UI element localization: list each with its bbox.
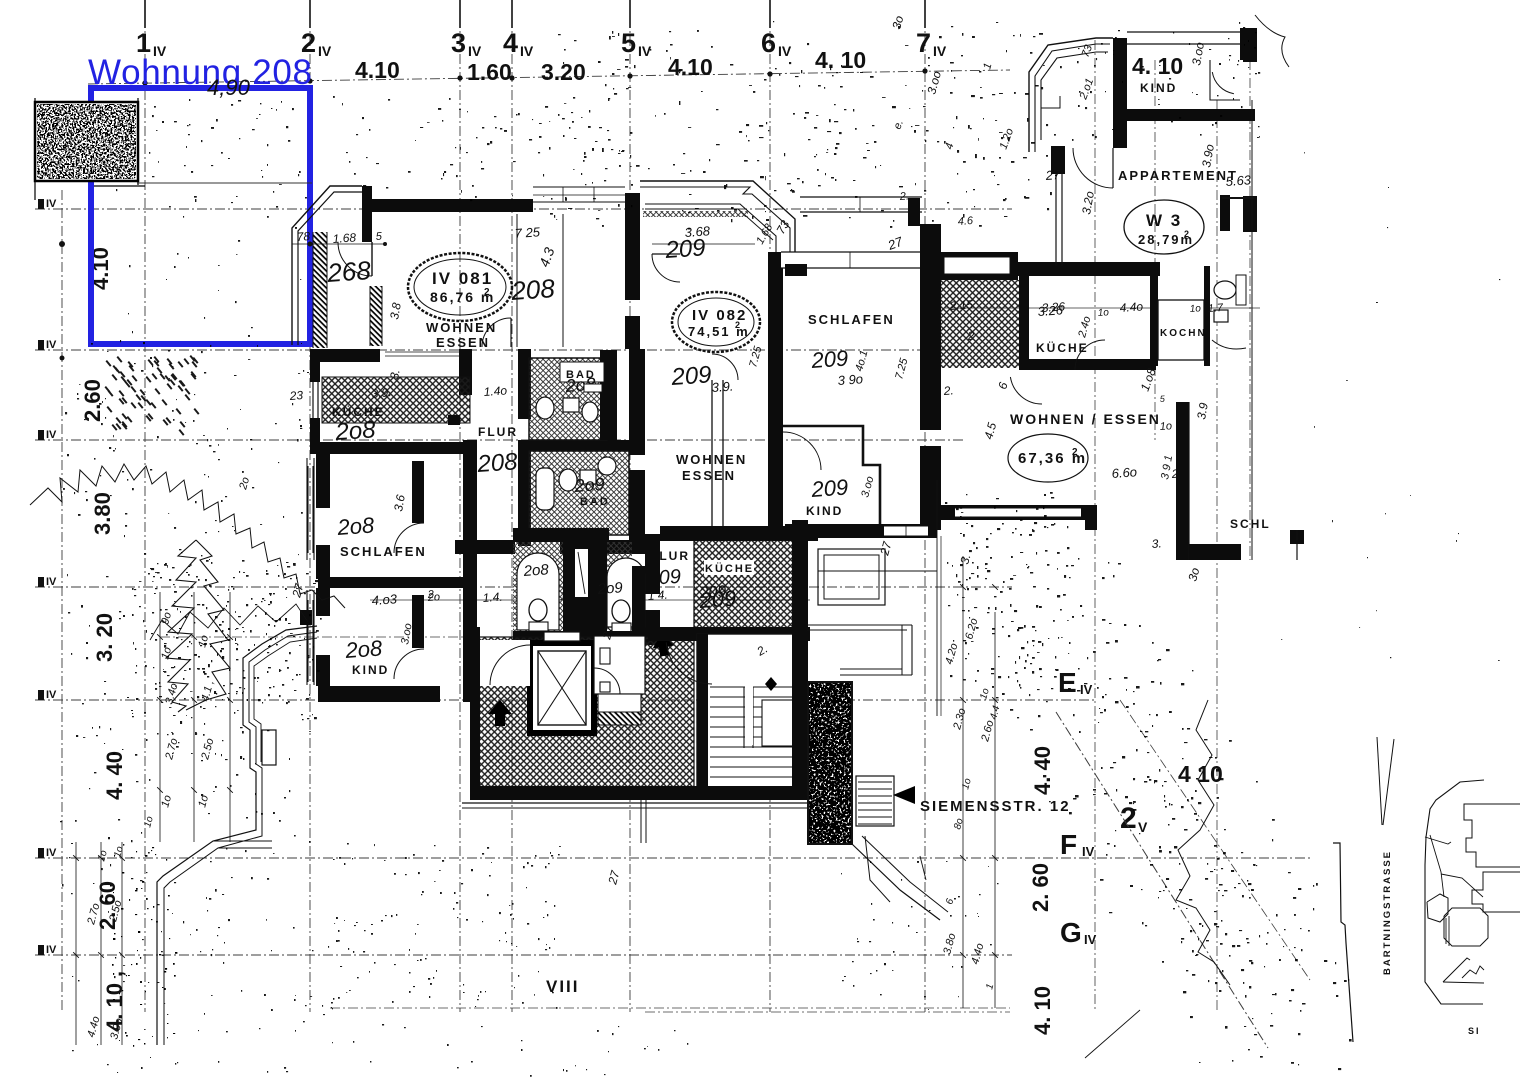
svg-text:IV: IV (46, 339, 57, 351)
svg-text:4.10: 4.10 (355, 57, 400, 83)
svg-text:1o: 1o (1159, 420, 1172, 433)
svg-text:4. 10: 4. 10 (1030, 986, 1055, 1035)
svg-text:BAD: BAD (580, 496, 610, 508)
svg-text:3.8: 3.8 (387, 301, 404, 320)
svg-text:KÜCHE: KÜCHE (705, 562, 754, 575)
svg-text:2: 2 (484, 287, 492, 298)
svg-text:2: 2 (1072, 447, 1080, 458)
svg-text:IV: IV (933, 43, 947, 59)
svg-text:208: 208 (476, 448, 519, 478)
svg-text:KIND: KIND (1140, 81, 1177, 95)
svg-text:1.60: 1.60 (467, 59, 512, 85)
svg-text:4. 40: 4. 40 (1030, 746, 1055, 795)
svg-text:1.4o: 1.4o (483, 383, 508, 399)
svg-text:IV: IV (520, 43, 534, 59)
svg-text:E: E (1058, 667, 1077, 698)
svg-text:3: 3 (451, 28, 466, 58)
svg-text:268: 268 (325, 255, 372, 288)
svg-text:209: 209 (810, 345, 849, 373)
svg-text:2.60: 2.60 (80, 379, 105, 422)
svg-text:4.o3: 4.o3 (371, 591, 398, 608)
svg-text:SCHLAFEN: SCHLAFEN (808, 312, 895, 327)
svg-text:1 4.: 1 4. (647, 588, 668, 603)
svg-text:IV: IV (318, 43, 332, 59)
svg-text:5: 5 (621, 28, 636, 58)
svg-text:G: G (1060, 917, 1082, 948)
svg-text:2o8: 2o8 (522, 561, 550, 580)
svg-text:2.: 2. (942, 383, 954, 398)
svg-text:4.6: 4.6 (957, 215, 974, 228)
svg-text:7: 7 (916, 28, 931, 58)
svg-text:1o: 1o (1189, 303, 1201, 315)
svg-text:23: 23 (288, 388, 304, 403)
svg-text:2o9: 2o9 (573, 474, 605, 496)
svg-text:2.: 2. (426, 588, 437, 601)
svg-text:IV: IV (46, 429, 57, 441)
svg-text:209: 209 (664, 234, 707, 264)
svg-text:FLUR: FLUR (478, 425, 518, 439)
svg-text:BARTNINGSTRASSE: BARTNINGSTRASSE (1382, 850, 1393, 975)
svg-text:WOHNEN: WOHNEN (426, 320, 497, 335)
svg-text:3 9o: 3 9o (837, 371, 863, 388)
svg-text:F: F (1060, 829, 1077, 860)
svg-text:APPARTEMENT: APPARTEMENT (1118, 168, 1238, 183)
svg-text:IV: IV (1082, 844, 1095, 859)
svg-text:2o9: 2o9 (596, 579, 624, 598)
svg-text:V: V (1138, 819, 1148, 835)
svg-text:27: 27 (1044, 167, 1061, 183)
svg-text:WOHNEN / ESSEN: WOHNEN / ESSEN (1010, 411, 1161, 427)
svg-text:KOCHN.: KOCHN. (1160, 328, 1211, 339)
svg-text:IV: IV (46, 689, 57, 701)
svg-text:ESSEN: ESSEN (682, 468, 736, 483)
svg-text:209: 209 (670, 361, 713, 391)
svg-text:3. 20: 3. 20 (92, 613, 117, 662)
svg-text:1.7: 1.7 (1207, 302, 1224, 315)
svg-text:IV: IV (1084, 932, 1097, 947)
svg-text:209: 209 (698, 583, 727, 602)
svg-text:KIND: KIND (806, 504, 843, 518)
svg-text:2.: 2. (898, 190, 909, 203)
svg-text:6: 6 (761, 28, 776, 58)
svg-text:4. 10: 4. 10 (815, 47, 866, 73)
svg-text:1o: 1o (1097, 307, 1109, 319)
svg-text:2o8: 2o8 (334, 416, 377, 446)
svg-text:208: 208 (509, 273, 556, 306)
svg-text:SCHL: SCHL (1230, 517, 1271, 531)
svg-text:3.9.: 3.9. (371, 385, 392, 401)
svg-text:2o8: 2o8 (344, 635, 384, 663)
svg-text:3.80: 3.80 (90, 492, 115, 535)
svg-text:IV 081: IV 081 (432, 269, 493, 288)
svg-text:2: 2 (966, 329, 975, 344)
svg-text:4: 4 (503, 28, 518, 58)
svg-text:IV: IV (638, 43, 652, 59)
svg-text:IV: IV (46, 847, 57, 859)
svg-text:SCHLAFEN: SCHLAFEN (340, 544, 427, 559)
svg-text:IV: IV (46, 576, 57, 588)
svg-text:IV: IV (46, 944, 57, 956)
svg-text:6.6o: 6.6o (1111, 464, 1137, 481)
svg-text:4.4o: 4.4o (1119, 299, 1144, 315)
svg-text:3.6: 3.6 (391, 493, 408, 512)
svg-text:209: 209 (810, 474, 849, 502)
svg-text:SI: SI (1468, 1026, 1481, 1036)
svg-text:2: 2 (1184, 229, 1191, 239)
svg-text:4. 40: 4. 40 (102, 751, 127, 800)
svg-text:2o8: 2o8 (336, 512, 376, 540)
svg-text:1.4.: 1.4. (482, 590, 503, 605)
svg-text:7 25: 7 25 (514, 224, 541, 241)
svg-text:VIII: VIII (546, 977, 580, 996)
svg-text:78: 78 (296, 229, 311, 244)
svg-text:KIND: KIND (352, 663, 389, 677)
svg-text:2: 2 (735, 320, 742, 330)
svg-text:5.63: 5.63 (1225, 172, 1252, 189)
svg-text:IV: IV (468, 43, 482, 59)
svg-text:4. 10: 4. 10 (1132, 53, 1183, 79)
svg-text:2.15: 2.15 (948, 297, 974, 313)
svg-text:3.9: 3.9 (1194, 401, 1211, 420)
svg-text:3.26: 3.26 (1041, 299, 1066, 315)
svg-text:2. 60: 2. 60 (1028, 863, 1053, 912)
svg-text:IV: IV (46, 198, 57, 210)
svg-text:W 3: W 3 (1146, 211, 1182, 230)
svg-text:IV: IV (778, 43, 792, 59)
svg-text:4,90: 4,90 (207, 75, 251, 100)
svg-text:3.: 3. (1151, 536, 1162, 551)
svg-text:4.10: 4.10 (668, 54, 713, 80)
